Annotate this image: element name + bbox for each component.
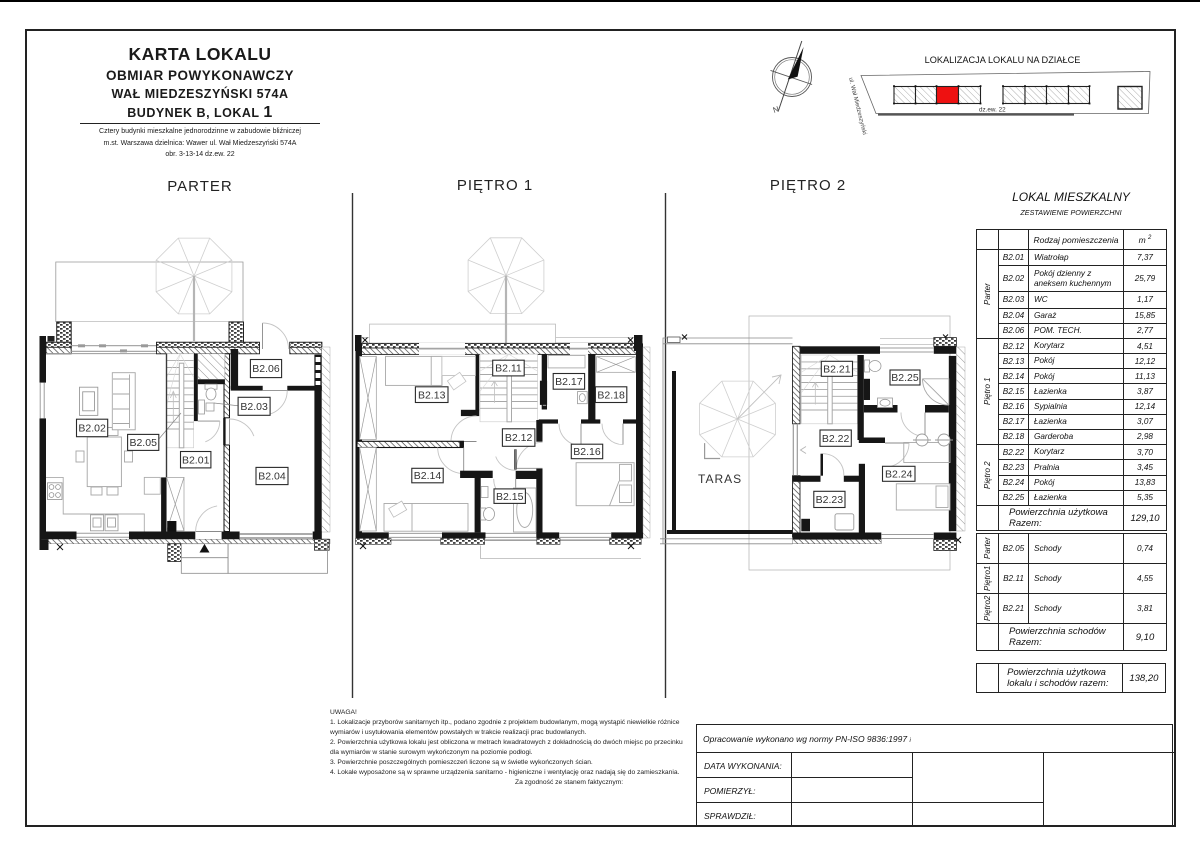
svg-text:B2.17: B2.17: [555, 376, 583, 388]
svg-text:B2.11: B2.11: [495, 363, 522, 375]
svg-text:B2.06: B2.06: [252, 363, 280, 375]
svg-text:B2.04: B2.04: [258, 471, 286, 483]
svg-text:B2.25: B2.25: [891, 372, 919, 384]
svg-text:B2.01: B2.01: [182, 454, 210, 466]
svg-text:B2.22: B2.22: [822, 433, 850, 445]
svg-text:B2.23: B2.23: [816, 494, 844, 506]
svg-text:ul. Wał Miedzeszyński: ul. Wał Miedzeszyński: [847, 77, 867, 136]
svg-text:B2.14: B2.14: [414, 470, 442, 482]
svg-text:B2.18: B2.18: [597, 389, 625, 401]
svg-text:B2.03: B2.03: [240, 401, 268, 413]
svg-text:B2.24: B2.24: [885, 468, 913, 480]
svg-text:B2.02: B2.02: [78, 423, 106, 435]
svg-text:TARAS: TARAS: [698, 472, 742, 486]
svg-text:B2.15: B2.15: [496, 491, 524, 503]
svg-text:dz.ew. 22: dz.ew. 22: [979, 107, 1006, 114]
svg-text:B2.05: B2.05: [129, 437, 157, 449]
svg-text:B2.21: B2.21: [823, 363, 851, 375]
svg-text:B2.16: B2.16: [573, 446, 601, 458]
svg-text:B2.12: B2.12: [505, 432, 533, 444]
svg-text:B2.13: B2.13: [418, 389, 446, 401]
